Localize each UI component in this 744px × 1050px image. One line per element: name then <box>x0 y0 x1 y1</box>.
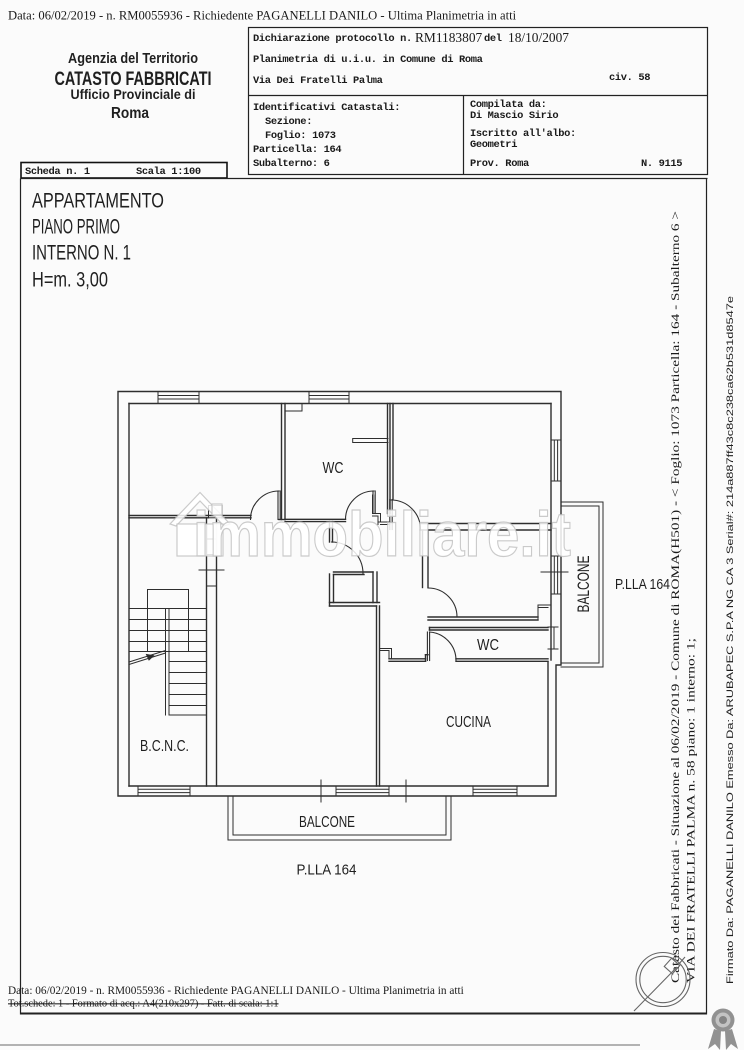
svg-text:INTERNO N. 1: INTERNO N. 1 <box>32 241 131 265</box>
svg-text:RM1183807: RM1183807 <box>415 30 483 45</box>
svg-text:Geometri: Geometri <box>470 139 517 151</box>
svg-text:WC: WC <box>477 637 499 654</box>
svg-text:Roma: Roma <box>111 105 149 122</box>
svg-text:Data: 06/02/2019 - n. RM00559: Data: 06/02/2019 - n. RM0055936 - Richie… <box>8 9 517 23</box>
svg-text:Dichiarazione protocollo n.: Dichiarazione protocollo n. <box>253 33 412 45</box>
svg-text:Firmato Da: PAGANELLI DANILO E: Firmato Da: PAGANELLI DANILO Emesso Da: … <box>725 296 735 984</box>
svg-text:Foglio: 1073: Foglio: 1073 <box>265 130 336 142</box>
svg-text:Agenzia del Territorio: Agenzia del Territorio <box>68 51 198 67</box>
svg-text:civ. 58: civ. 58 <box>609 72 650 84</box>
svg-text:CUCINA: CUCINA <box>446 714 492 731</box>
svg-text:Prov. Roma: Prov. Roma <box>470 158 529 170</box>
svg-text:Data: 06/02/2019 - n. RM00559: Data: 06/02/2019 - n. RM0055936 - Richie… <box>8 985 464 997</box>
svg-text:Tot.schede: 1 - Formato di ac: Tot.schede: 1 - Formato di acq.: A4(210x… <box>8 999 279 1010</box>
svg-text:N. 9115: N. 9115 <box>641 158 682 170</box>
svg-text:Di Mascio Sirio: Di Mascio Sirio <box>470 110 558 122</box>
svg-text:Sezione:: Sezione: <box>265 116 312 128</box>
svg-text:Planimetria di u.i.u. in Comun: Planimetria di u.i.u. in Comune di Roma <box>253 54 483 66</box>
svg-text:Subalterno: 6: Subalterno: 6 <box>253 158 330 170</box>
svg-text:APPARTAMENTO: APPARTAMENTO <box>32 189 164 213</box>
svg-text:Ufficio Provinciale di: Ufficio Provinciale di <box>71 86 196 102</box>
svg-text:BALCONE: BALCONE <box>299 814 355 831</box>
svg-text:Catasto dei Fabbricati - Situa: Catasto dei Fabbricati - Situazione al 0… <box>668 211 682 983</box>
svg-text:H=m. 3,00: H=m. 3,00 <box>32 268 108 292</box>
svg-text:del: del <box>484 33 502 45</box>
svg-text:Via Dei Fratelli Palma: Via Dei Fratelli Palma <box>253 75 383 87</box>
svg-text:Particella: 164: Particella: 164 <box>253 144 341 156</box>
svg-text:VIA DEI FRATELLI PALMA n. 58 p: VIA DEI FRATELLI PALMA n. 58 piano: 1 in… <box>684 638 698 983</box>
svg-text:18/10/2007: 18/10/2007 <box>508 30 569 45</box>
svg-text:P.LLA 164: P.LLA 164 <box>615 577 670 593</box>
svg-text:Scheda n. 1: Scheda n. 1 <box>25 166 90 178</box>
svg-text:PIANO PRIMO: PIANO PRIMO <box>32 215 120 239</box>
svg-text:Scala 1:100: Scala 1:100 <box>136 166 201 178</box>
svg-text:BALCONE: BALCONE <box>574 556 593 613</box>
svg-text:B.C.N.C.: B.C.N.C. <box>140 738 189 755</box>
svg-text:P.LLA 164: P.LLA 164 <box>297 862 357 879</box>
svg-text:WC: WC <box>323 460 344 477</box>
svg-text:Identificativi Catastali:: Identificativi Catastali: <box>253 102 400 114</box>
svg-text:immobiliare.it: immobiliare.it <box>193 500 571 570</box>
